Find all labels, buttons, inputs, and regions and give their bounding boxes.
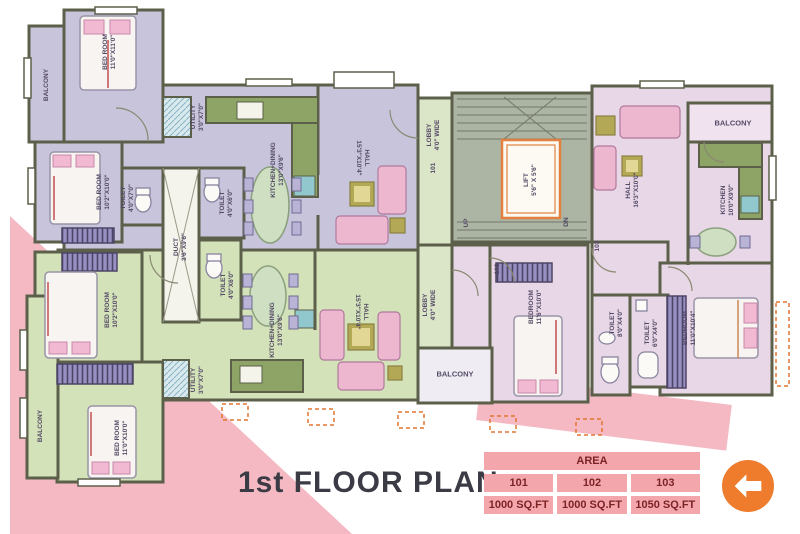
bed-icon	[694, 298, 758, 358]
bed-icon	[45, 272, 97, 358]
unit-area-cell: 1050 SQ.FT	[631, 496, 700, 514]
unit-area-cell: 1000 SQ.FT	[484, 496, 553, 514]
unit-number-cell: 101	[484, 474, 553, 492]
unit-number-cell: 103	[631, 474, 700, 492]
area-table-header: AREA	[484, 452, 700, 470]
bed-icon	[88, 406, 136, 478]
page-title: 1st FLOOR PLAN	[238, 466, 499, 500]
area-table: AREA 101 102 103 1000 SQ.FT 1000 SQ.FT 1…	[484, 452, 700, 518]
left-arrow-icon	[731, 471, 765, 501]
duct-shaft	[163, 168, 199, 322]
floor-plan-page: BALCONY BED ROOM 11'0"X11'0" BED ROOM 10…	[0, 0, 800, 534]
lift-shaft	[502, 140, 560, 218]
staircase	[452, 93, 592, 242]
unit-area-cell: 1000 SQ.FT	[557, 496, 626, 514]
bed-icon	[514, 316, 562, 396]
unit-number-cell: 102	[557, 474, 626, 492]
back-button[interactable]	[722, 460, 774, 512]
bed-icon	[50, 152, 100, 224]
bed-icon	[80, 16, 136, 90]
